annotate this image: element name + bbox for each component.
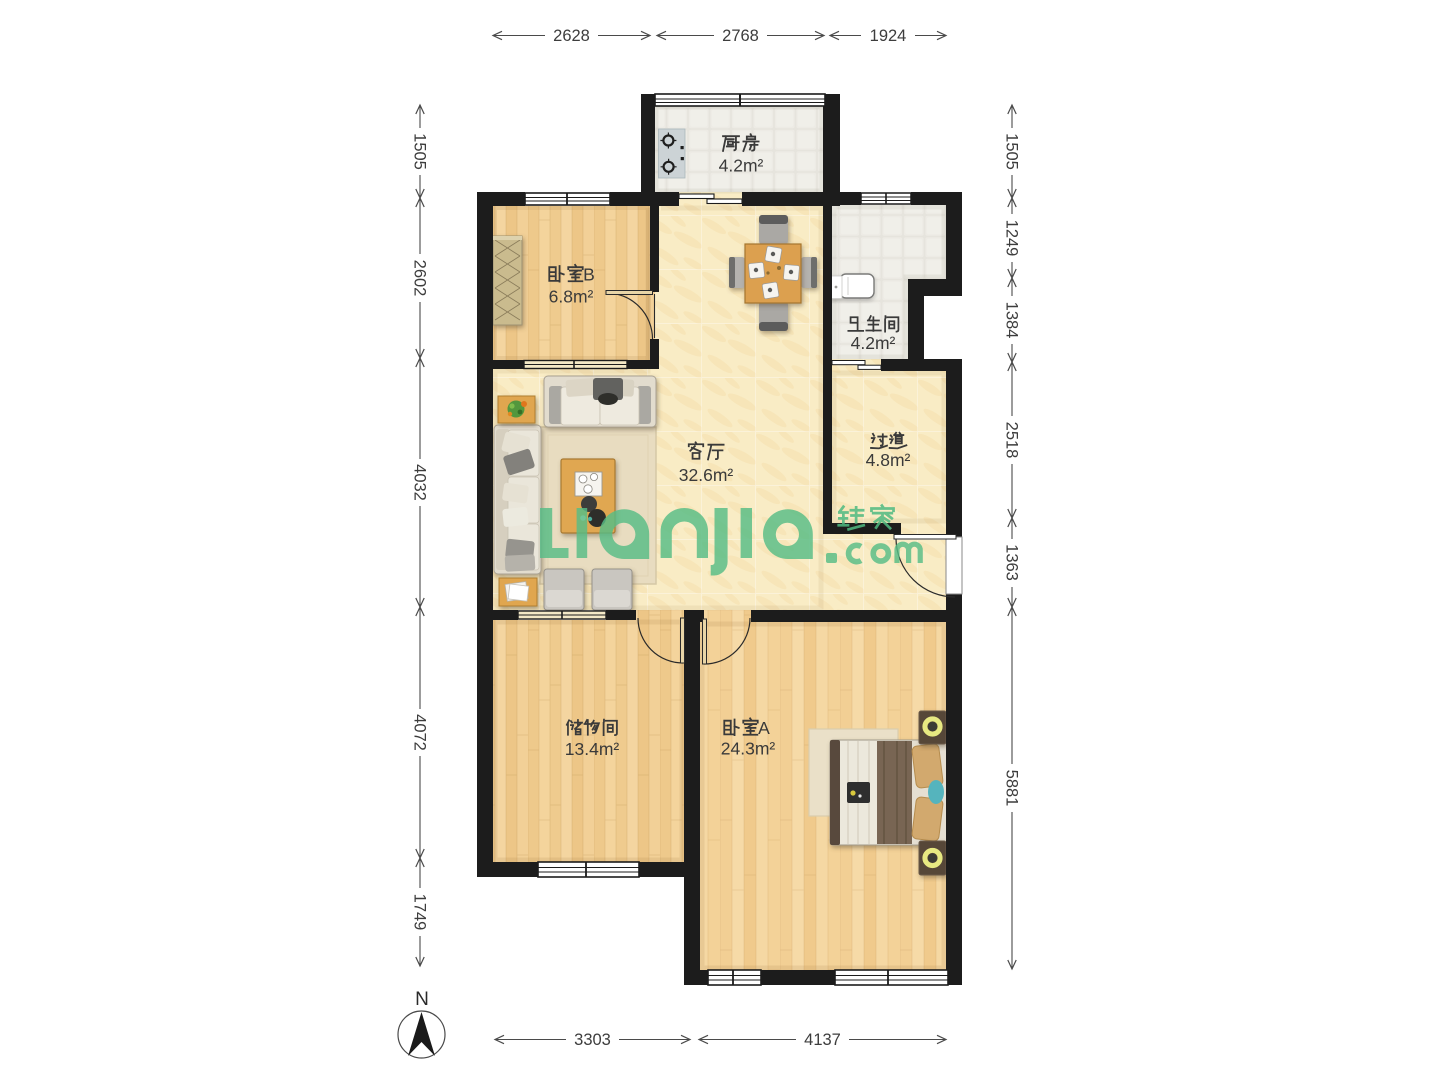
svg-text:3303: 3303 <box>574 1031 611 1049</box>
svg-text:4137: 4137 <box>804 1031 841 1049</box>
svg-text:2628: 2628 <box>553 27 590 45</box>
svg-text:32.6m²: 32.6m² <box>679 465 734 485</box>
svg-text:24.3m²: 24.3m² <box>721 739 776 759</box>
svg-text:4032: 4032 <box>411 464 429 501</box>
svg-text:4.2m²: 4.2m² <box>851 333 896 353</box>
svg-text:6.8m²: 6.8m² <box>549 287 594 307</box>
svg-text:N: N <box>415 989 429 1010</box>
svg-text:1363: 1363 <box>1003 544 1021 581</box>
svg-text:13.4m²: 13.4m² <box>565 739 620 759</box>
svg-text:1249: 1249 <box>1003 220 1021 257</box>
svg-text:2602: 2602 <box>411 260 429 297</box>
svg-text:4.8m²: 4.8m² <box>866 450 911 470</box>
svg-text:5881: 5881 <box>1003 770 1021 807</box>
svg-text:1924: 1924 <box>870 27 907 45</box>
svg-text:B: B <box>583 265 595 285</box>
svg-text:1505: 1505 <box>411 133 429 170</box>
svg-text:1749: 1749 <box>411 894 429 931</box>
svg-text:1505: 1505 <box>1003 133 1021 170</box>
svg-text:4072: 4072 <box>411 714 429 751</box>
svg-text:2768: 2768 <box>722 27 759 45</box>
svg-text:4.2m²: 4.2m² <box>719 156 764 176</box>
svg-text:1384: 1384 <box>1003 302 1021 339</box>
svg-text:A: A <box>758 718 770 738</box>
svg-text:2518: 2518 <box>1003 422 1021 459</box>
